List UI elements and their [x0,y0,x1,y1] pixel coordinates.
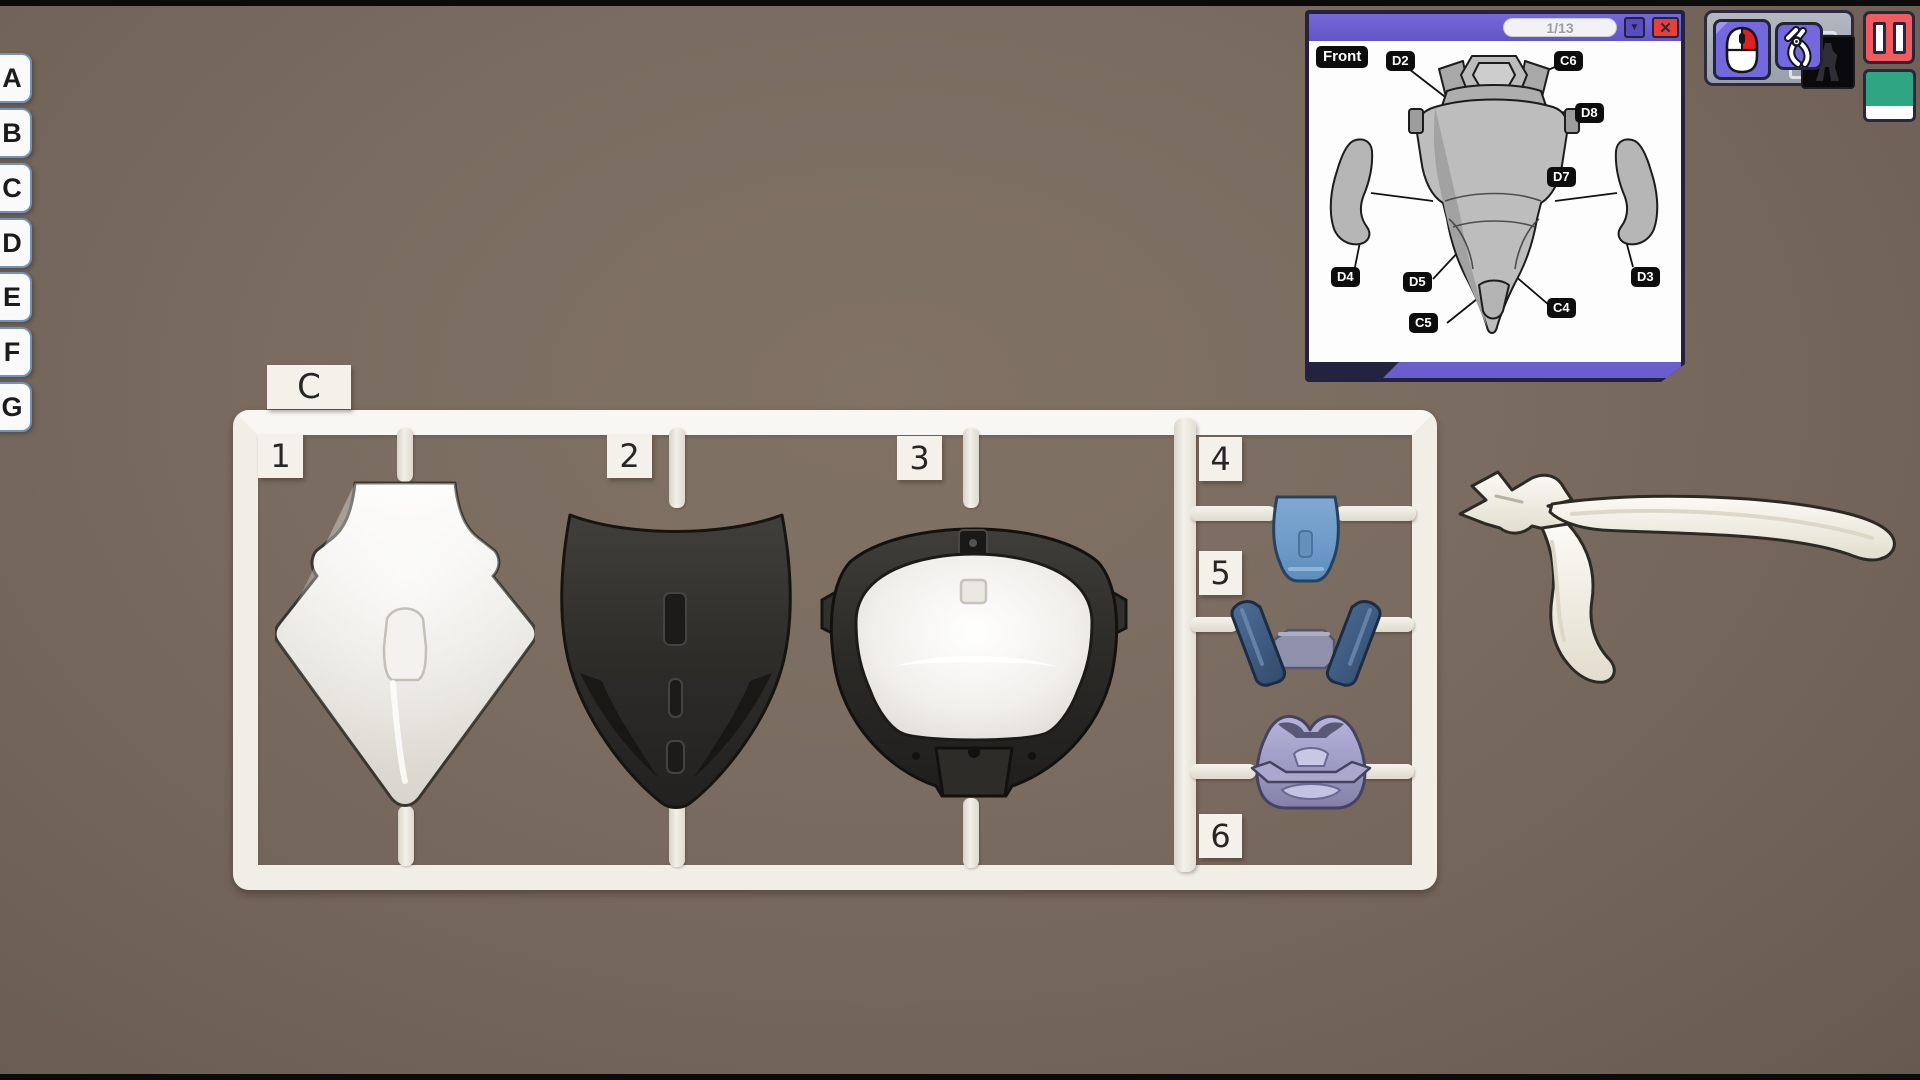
nippers-icon [1779,25,1819,67]
part-label-d4: D4 [1331,267,1360,287]
part-c5-waist-set[interactable] [1228,600,1384,688]
sidebar-tab-runner-g[interactable]: G [0,382,32,432]
part-c4-blue-piece[interactable] [1270,493,1342,585]
pause-icon [1873,22,1886,54]
plaque-number: 6 [1210,817,1230,855]
part-c2-black-shell[interactable] [558,503,794,817]
letterbox-top [0,0,1920,6]
sidebar-tab-runner-f[interactable]: F [0,327,32,377]
gate-part3-top[interactable] [963,428,979,508]
part-number-plaque-1: 1 [258,434,303,478]
nippers-tool-button[interactable] [1775,22,1823,70]
plaque-number: 1 [270,437,290,475]
mouse-icon [1724,26,1760,74]
pause-button[interactable] [1863,11,1915,64]
mouse-controls-button[interactable] [1713,19,1771,80]
part-c3-chest-torso[interactable] [820,500,1128,810]
gate-part1-top[interactable] [397,428,413,482]
part-c6-lavender-vent[interactable] [1250,710,1372,814]
tab-label: D [2,228,22,259]
part-number-plaque-3: 3 [897,436,942,480]
part-label-c6: C6 [1554,51,1583,71]
pause-icon [1893,22,1906,54]
page-dropdown-button[interactable]: ▼ [1624,17,1645,38]
part-label-c5: C4 [1547,298,1576,318]
tool-tray [1704,10,1854,86]
part-number-plaque-4: 4 [1199,437,1242,481]
chevron-down-icon: ▼ [1630,22,1640,33]
gate-part6-left[interactable] [1190,764,1256,779]
part-label-d7: D7 [1547,167,1576,187]
sprue-divider-rail [1174,418,1196,872]
sidebar-tab-runner-d[interactable]: D [0,218,32,268]
swatch-band [1866,106,1913,119]
tab-label: E [3,282,21,313]
manual-title-bar[interactable]: 1/13 ▼ ✕ [1309,14,1681,41]
part-label-d8: D8 [1575,103,1604,123]
runner-letter-plaque: C [267,365,351,409]
page-indicator[interactable]: 1/13 [1503,18,1617,37]
view-orientation-label: Front [1316,46,1368,68]
instruction-manual-window: 1/13 ▼ ✕ [1305,10,1685,382]
gate-part4-right[interactable] [1336,506,1416,521]
sidebar-tab-runner-b[interactable]: B [0,108,32,158]
tab-label: C [2,173,22,204]
plaque-number: 3 [909,439,929,477]
part-number-plaque-2: 2 [607,434,652,478]
assembly-diagram [1309,41,1681,362]
tab-label: G [1,392,22,423]
close-icon: ✕ [1659,19,1672,37]
manual-diagram-page: Front D2 C6 D8 D7 D4 D5 D3 C5 C4 [1309,41,1681,362]
part-label-d5: D5 [1403,272,1432,292]
sidebar-tab-runner-e[interactable]: E [0,272,32,322]
part-label-d3: D3 [1631,267,1660,287]
gate-part4-left[interactable] [1190,506,1276,521]
color-swatch-button[interactable] [1863,69,1916,122]
part-number-plaque-5: 5 [1199,551,1242,595]
plaque-number: 5 [1210,554,1230,592]
sprue-nippers-tool[interactable] [1452,462,1900,708]
part-number-plaque-6: 6 [1199,814,1242,858]
game-screen: A B C D E F G C 1 2 3 4 5 6 [0,0,1920,1080]
part-label-d2: D2 [1386,51,1415,71]
sidebar-tab-runner-c[interactable]: C [0,163,32,213]
plaque-number: 2 [619,437,639,475]
manual-close-button[interactable]: ✕ [1652,17,1679,38]
tab-label: F [4,337,21,368]
gate-part1-bottom[interactable] [398,806,414,866]
letterbox-bottom [0,1074,1920,1080]
sidebar-tab-runner-a[interactable]: A [0,53,32,103]
corner-fold [1715,21,1729,35]
tab-label: B [2,118,22,149]
gate-part2-top[interactable] [669,428,685,508]
part-label-c4: C5 [1409,313,1438,333]
part-c1-white-plate[interactable] [275,477,535,813]
manual-footer-bar [1383,362,1681,378]
plaque-number: 4 [1210,440,1230,478]
tab-label: A [2,63,22,94]
